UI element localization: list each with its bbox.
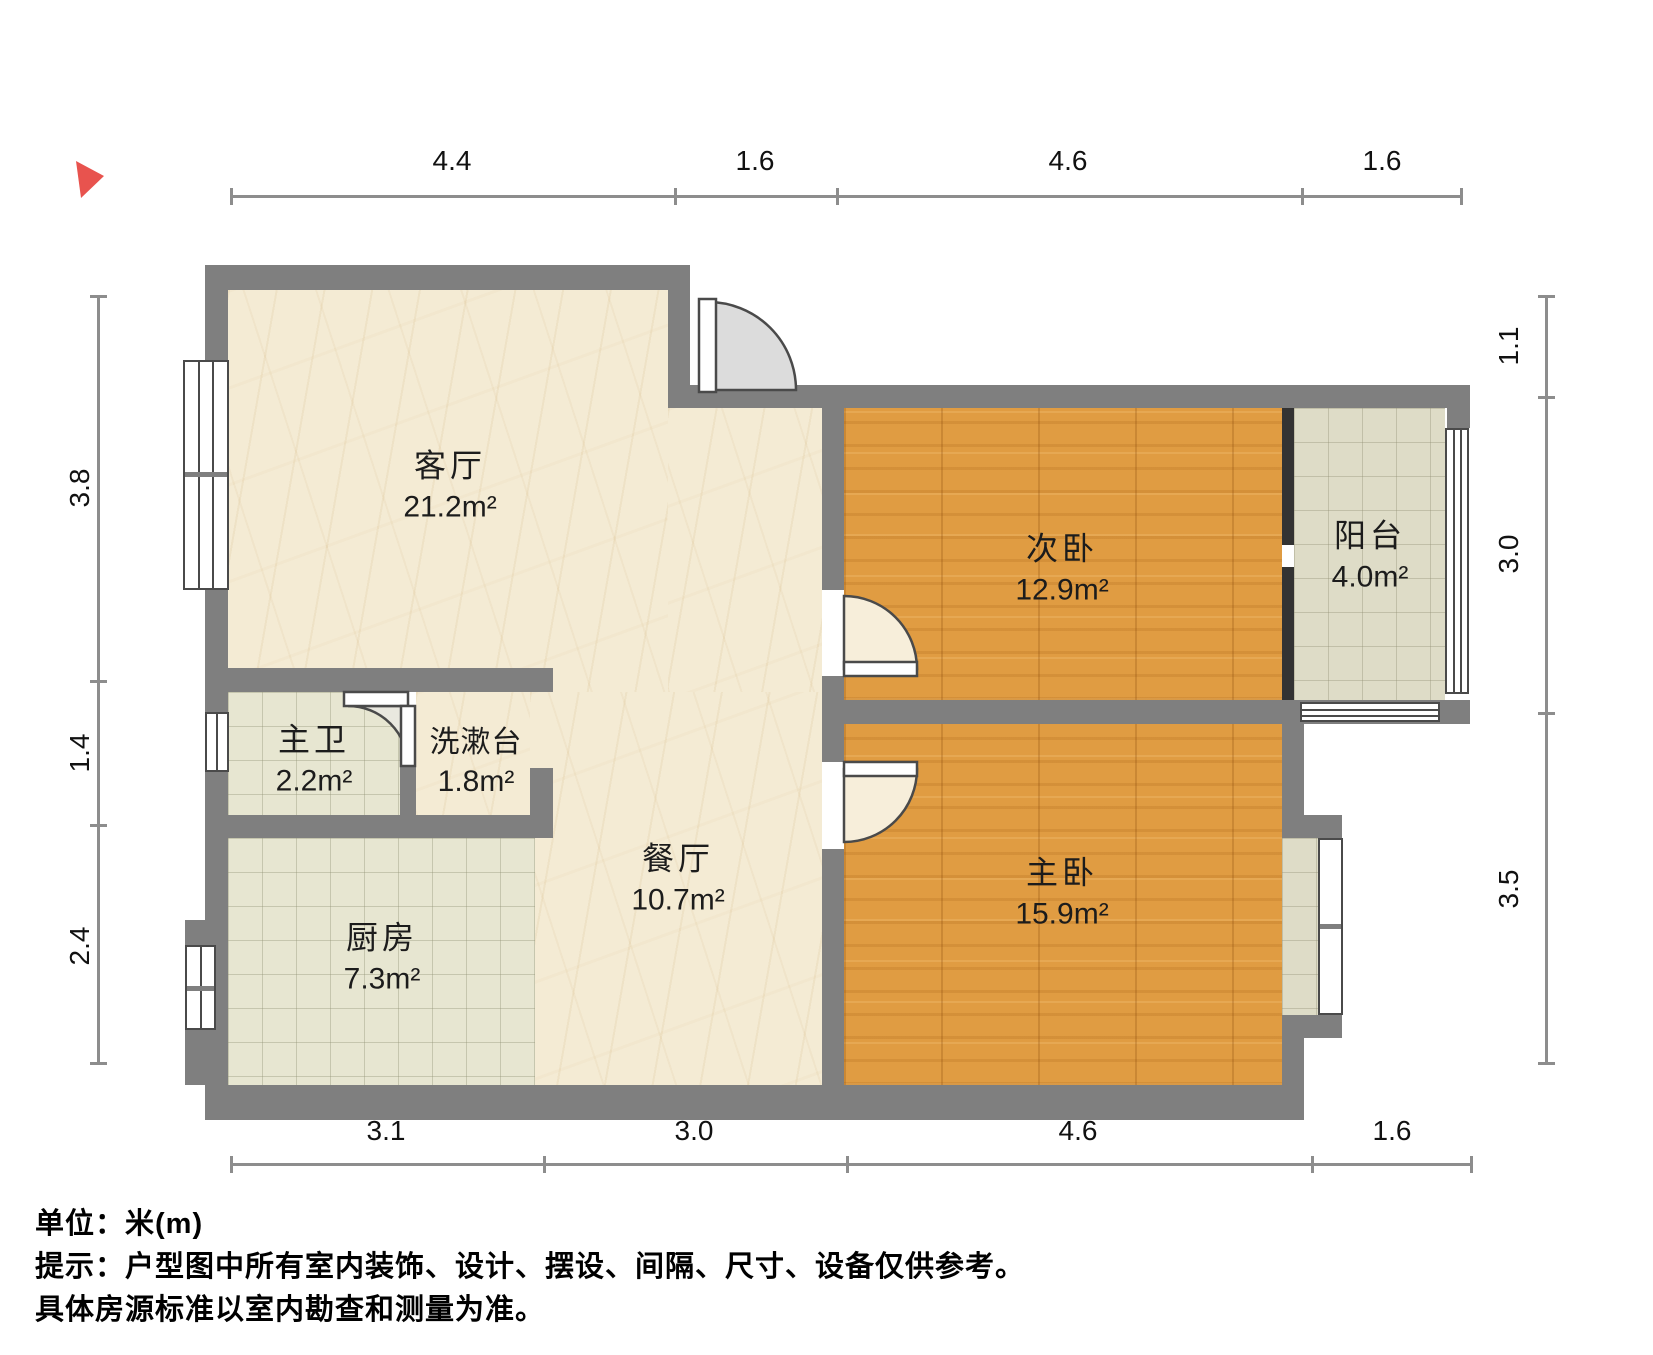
dim-line-top	[230, 195, 1463, 198]
dim-top-3: 4.6	[1023, 144, 1113, 178]
dim-tick	[90, 1062, 107, 1065]
master-bath-door-lintel	[344, 692, 408, 706]
dim-tick	[1538, 712, 1555, 715]
room-area: 7.3m²	[344, 959, 421, 998]
room-label-washstand: 洗漱台 1.8m²	[430, 723, 523, 801]
north-compass-icon	[76, 161, 104, 198]
dim-right-2: 3.0	[1492, 509, 1526, 599]
dim-tick	[1538, 396, 1555, 399]
room-area: 10.7m²	[631, 880, 724, 919]
dim-tick	[1301, 188, 1304, 205]
dim-tick	[1538, 295, 1555, 298]
dim-right-3: 3.5	[1492, 844, 1526, 934]
room-name: 洗漱台	[430, 723, 523, 762]
room-label-kitchen: 厨房 7.3m²	[344, 918, 421, 999]
room-area: 4.0m²	[1332, 557, 1409, 596]
dim-tick	[674, 188, 677, 205]
master-bedroom-door-swing	[844, 769, 917, 842]
dim-tick	[1460, 188, 1463, 205]
footer-disclaimer-2: 具体房源标准以室内勘查和测量为准。	[35, 1286, 545, 1328]
dim-tick	[1538, 1062, 1555, 1065]
dim-right-1: 1.1	[1492, 301, 1526, 391]
doors-overlay	[0, 0, 1653, 1355]
room-area: 21.2m²	[403, 487, 496, 526]
floorplan-canvas: 客厅 21.2m² 次卧 12.9m² 阳台 4.0m² 主卫 2.2m² 洗漱…	[0, 0, 1653, 1355]
second-bedroom-door-swing	[844, 596, 917, 669]
dim-tick	[1311, 1156, 1314, 1173]
room-area: 2.2m²	[276, 761, 353, 800]
dim-top-1: 4.4	[407, 144, 497, 178]
room-name: 主卫	[276, 720, 353, 762]
room-name: 次卧	[1015, 529, 1108, 571]
dim-bottom-2: 3.0	[649, 1114, 739, 1148]
dim-tick	[90, 295, 107, 298]
room-label-dining: 餐厅 10.7m²	[631, 839, 724, 920]
dim-tick	[230, 188, 233, 205]
dim-bottom-4: 1.6	[1347, 1114, 1437, 1148]
dim-tick	[836, 188, 839, 205]
dim-left-3: 2.4	[63, 901, 97, 991]
room-name: 主卧	[1015, 853, 1108, 895]
room-name: 厨房	[344, 918, 421, 960]
dim-tick	[90, 824, 107, 827]
footer-unit-note: 单位：米(m)	[35, 1200, 203, 1242]
room-name: 客厅	[403, 446, 496, 488]
dim-top-2: 1.6	[710, 144, 800, 178]
dim-line-left	[97, 295, 100, 1065]
master-bath-door-leaf	[401, 706, 415, 766]
dim-line-bottom	[230, 1163, 1473, 1166]
dim-tick	[1470, 1156, 1473, 1173]
room-name: 阳台	[1332, 516, 1409, 558]
room-label-balcony: 阳台 4.0m²	[1332, 516, 1409, 597]
room-label-master-bedroom: 主卧 15.9m²	[1015, 853, 1108, 934]
dim-bottom-3: 4.6	[1033, 1114, 1123, 1148]
dim-tick	[90, 680, 107, 683]
dim-left-2: 1.4	[63, 708, 97, 798]
room-area: 12.9m²	[1015, 570, 1108, 609]
room-label-living: 客厅 21.2m²	[403, 446, 496, 527]
entrance-door-leaf	[699, 299, 716, 392]
entrance-door-swing	[708, 302, 796, 390]
dim-bottom-1: 3.1	[341, 1114, 431, 1148]
dim-left-1: 3.8	[63, 443, 97, 533]
master-bath-door-swing	[348, 706, 408, 766]
dim-tick	[543, 1156, 546, 1173]
room-label-master-bath: 主卫 2.2m²	[276, 720, 353, 801]
room-area: 15.9m²	[1015, 894, 1108, 933]
dim-top-4: 1.6	[1337, 144, 1427, 178]
room-area: 1.8m²	[430, 762, 523, 801]
second-bedroom-door-leaf	[844, 662, 917, 676]
room-label-second-bedroom: 次卧 12.9m²	[1015, 529, 1108, 610]
footer-disclaimer-1: 提示：户型图中所有室内装饰、设计、摆设、间隔、尺寸、设备仅供参考。	[35, 1243, 1025, 1285]
master-bedroom-door-leaf	[844, 762, 917, 776]
dim-tick	[230, 1156, 233, 1173]
room-name: 餐厅	[631, 839, 724, 881]
dim-tick	[846, 1156, 849, 1173]
dim-line-right	[1545, 295, 1548, 1065]
